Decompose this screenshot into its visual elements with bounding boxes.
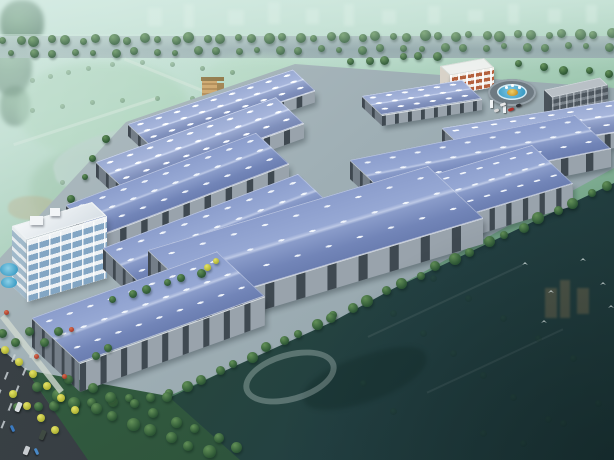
car: [34, 448, 40, 456]
plaza-tree: [40, 338, 49, 347]
tree: [105, 392, 116, 403]
tree: [88, 383, 98, 393]
tree: [130, 399, 139, 408]
tree: [247, 352, 258, 363]
tree: [34, 402, 43, 411]
yellow-tree: [57, 394, 65, 402]
tree: [261, 342, 271, 352]
car: [38, 429, 46, 440]
tree: [602, 181, 612, 191]
yellow-tree: [29, 370, 37, 378]
red-shrub: [69, 327, 74, 332]
tree: [229, 360, 237, 368]
aerial-rendering-canvas: [0, 0, 614, 460]
plaza-tree: [25, 327, 34, 336]
tree: [214, 433, 224, 443]
plaza-pool: [0, 263, 18, 276]
tree: [171, 417, 182, 428]
red-shrub: [34, 354, 39, 359]
tree: [91, 403, 102, 414]
yellow-tree: [204, 264, 211, 271]
tree: [127, 418, 140, 431]
tree: [162, 392, 172, 402]
car: [10, 425, 16, 433]
tree: [182, 381, 193, 392]
yellow-tree: [9, 390, 17, 398]
plaza-tree: [11, 338, 20, 347]
tree: [32, 382, 42, 392]
plaza-walkway: [0, 314, 64, 393]
tree: [92, 352, 100, 360]
tree: [49, 401, 59, 411]
yellow-tree: [15, 358, 23, 366]
yellow-tree: [37, 414, 45, 422]
tree: [129, 290, 137, 298]
tree: [196, 375, 206, 385]
tree: [148, 408, 158, 418]
tree: [164, 279, 171, 286]
yellow-tree: [1, 346, 9, 354]
corner-vignette: [274, 200, 614, 460]
tree: [144, 424, 156, 436]
tree: [109, 296, 116, 303]
yellow-tree: [71, 406, 79, 414]
plaza-tree: [54, 327, 63, 336]
tree: [166, 432, 177, 443]
red-shrub: [4, 310, 9, 315]
yellow-tree: [213, 258, 219, 264]
haze-overlay-top: [0, 0, 614, 70]
tree: [104, 344, 112, 352]
tree: [177, 274, 185, 282]
yellow-tree: [51, 426, 59, 434]
tree: [216, 366, 225, 375]
plaza-pool: [1, 277, 17, 288]
car: [22, 445, 30, 455]
tree: [146, 393, 155, 402]
tree: [183, 441, 193, 451]
tree: [231, 442, 242, 453]
tree: [190, 424, 199, 433]
tree: [142, 285, 151, 294]
red-shrub: [62, 374, 67, 379]
plaza-tree: [0, 329, 7, 338]
yellow-tree: [43, 382, 51, 390]
tree: [107, 411, 117, 421]
tree: [203, 445, 216, 458]
yellow-tree: [23, 402, 31, 410]
tree: [588, 189, 596, 197]
